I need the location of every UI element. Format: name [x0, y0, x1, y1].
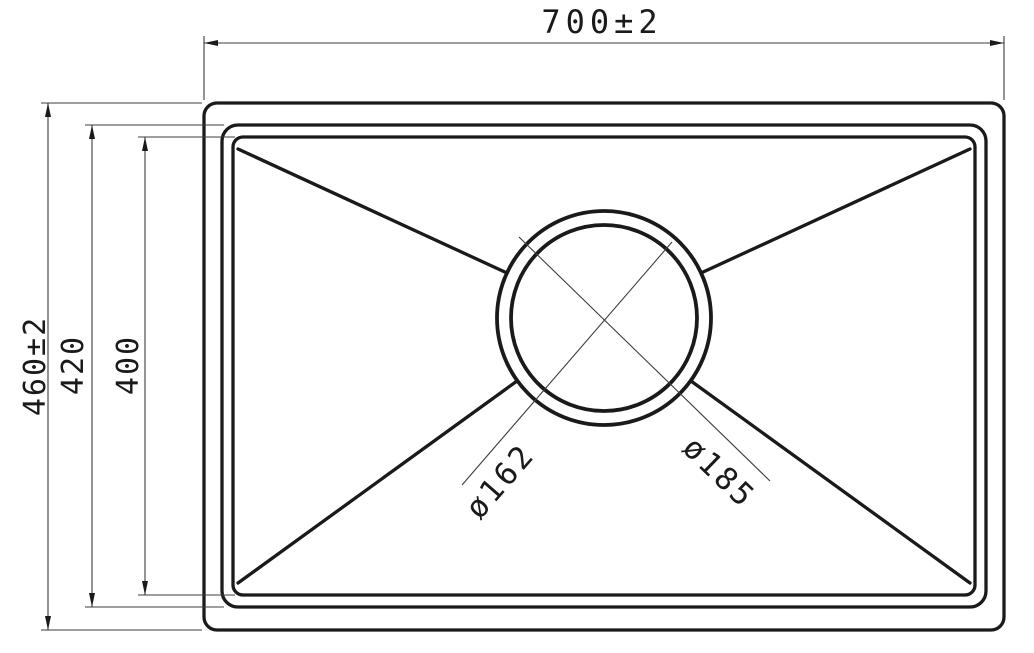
arrowhead-460-top — [45, 103, 51, 117]
arrowhead-top-left — [204, 40, 218, 46]
arrowhead-420-bottom — [89, 593, 95, 607]
dim-label-drain-outer-diameter: ø185 — [675, 430, 762, 516]
slope-line-top-right — [701, 149, 970, 273]
dim-label-bowl-inner-height: 400 — [111, 335, 146, 395]
arrowhead-top-right — [990, 40, 1004, 46]
drawing-canvas: 700±2 460±2 420 400 ø162 ø185 — [0, 0, 1034, 653]
arrowhead-400-top — [142, 137, 148, 151]
arrowhead-400-bottom — [142, 581, 148, 595]
leader-line-drain-inner — [462, 242, 672, 485]
bowl-inner-edge — [233, 137, 975, 595]
arrowhead-460-bottom — [45, 616, 51, 630]
sink-technical-drawing: 700±2 460±2 420 400 ø162 ø185 — [0, 0, 1034, 653]
dim-label-drain-inner-diameter: ø162 — [458, 437, 542, 526]
dim-label-top-width: 700±2 — [541, 3, 662, 41]
bowl-outer-edge — [222, 125, 986, 607]
dim-label-overall-height: 460±2 — [18, 316, 53, 416]
sink-outer-rim — [204, 103, 1004, 630]
arrowhead-420-top — [89, 125, 95, 139]
dim-label-bowl-outer-height: 420 — [56, 335, 91, 395]
slope-line-top-left — [238, 149, 507, 273]
